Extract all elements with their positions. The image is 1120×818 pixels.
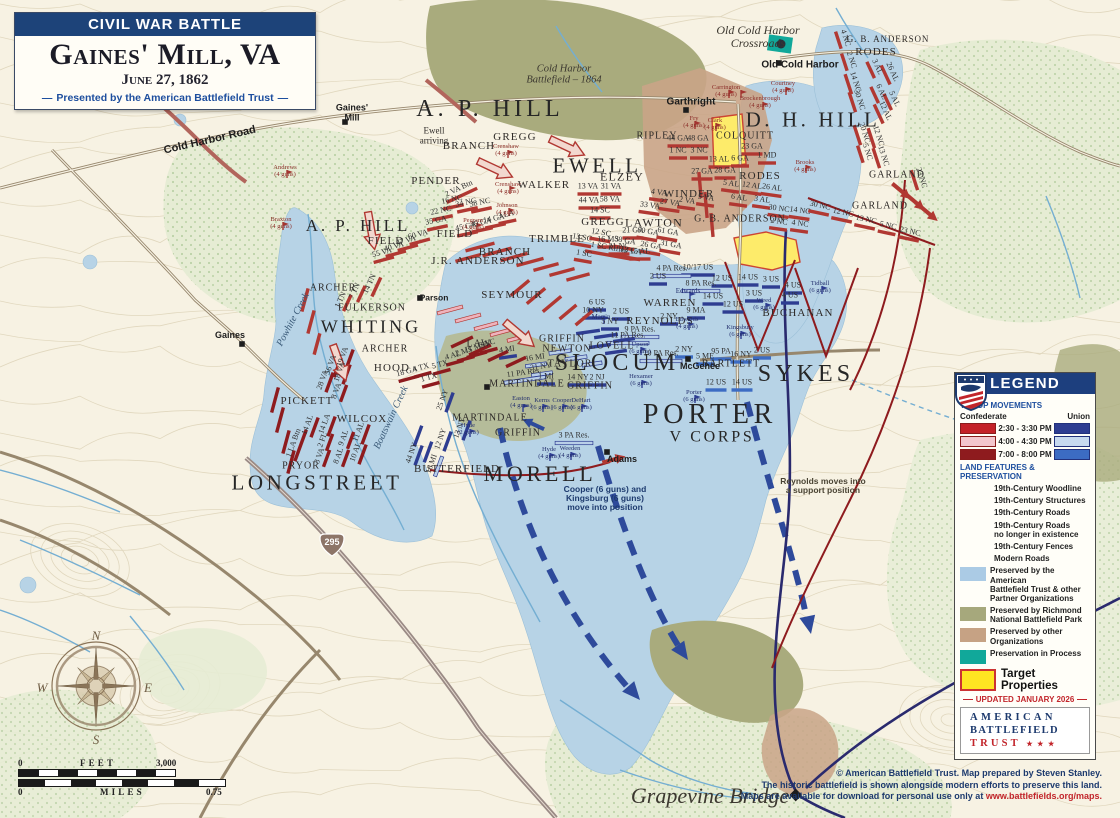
unit-bar (526, 287, 547, 305)
legend-troop-row: 2:30 - 3:30 PM (960, 423, 1090, 434)
unit-bar (601, 327, 619, 330)
unit-bar (356, 285, 367, 303)
unit-bar (762, 285, 780, 288)
battle-date: June 27, 1862 (15, 72, 315, 89)
page-title: Gaines' Mill, VA (15, 38, 315, 72)
unit-bar (856, 145, 865, 163)
confederate-arrow (916, 202, 941, 225)
unit-bar (649, 197, 667, 203)
confederate-attack-arrow (475, 154, 516, 185)
legend-item-road: 19th-Century Roads (960, 508, 1090, 517)
unit-bar (286, 450, 295, 474)
unit-bar (688, 144, 709, 147)
svg-text:295: 295 (324, 537, 339, 547)
unit-bar (723, 310, 744, 313)
unit-bar (706, 388, 727, 391)
unit-bar (324, 372, 334, 393)
unit-bar (549, 349, 571, 355)
unit-bar (609, 252, 630, 255)
unit-bar (687, 316, 705, 319)
artillery-marker (543, 404, 549, 412)
unit-bar (697, 172, 703, 198)
unit-bar (758, 161, 776, 164)
unit-bar (422, 381, 440, 389)
unit-bar (306, 310, 315, 334)
artillery-marker (741, 90, 747, 98)
artillery-marker (550, 453, 556, 461)
unit-bar (866, 128, 876, 149)
unit-bar (715, 176, 736, 179)
unit-bar (558, 304, 577, 321)
artillery-marker (822, 286, 828, 294)
unit-bar (790, 228, 808, 234)
credits-url-link[interactable]: www.battlefields.org/maps. (986, 791, 1102, 801)
unit-bar (753, 356, 771, 359)
unit-bar (341, 449, 350, 467)
unit-bar (413, 445, 423, 466)
unit-bar (516, 257, 544, 268)
structure-marker (683, 107, 689, 113)
unit-bar (880, 65, 892, 85)
unit-bar (769, 226, 787, 232)
union-retreat-arrows (500, 402, 807, 690)
unit-bar (342, 294, 353, 312)
unit-bar (852, 125, 862, 146)
unit-bar (455, 313, 481, 323)
structure-marker (342, 119, 348, 125)
legend-preservation-item: Preserved by other Organizations (960, 627, 1090, 645)
unit-bar (568, 383, 589, 386)
unit-bar (432, 214, 453, 222)
unit-bar (638, 210, 659, 216)
structure-marker (484, 384, 490, 390)
battle-type-banner: CIVIL WAR BATTLE (15, 13, 315, 36)
preservation-swatch (960, 567, 986, 581)
legend-item-woodline: 19th-Century Woodline (960, 484, 1090, 493)
unit-bar (738, 283, 759, 286)
unit-bar (682, 289, 720, 292)
unit-bar (474, 321, 498, 330)
unit-bar (594, 333, 618, 340)
artillery-marker (689, 322, 695, 330)
abt-logo: AMERICAN BATTLEFIELD TRUST ★ ★ ★ (960, 707, 1090, 754)
artillery-marker (510, 186, 516, 194)
legend-preservation-item: Preserved by Richmond National Battlefie… (960, 606, 1090, 624)
union-arrow (520, 415, 546, 434)
unit-bar (293, 429, 308, 462)
unit-bar (414, 371, 432, 379)
legend-panel: LEGEND TROOP MOVEMENTS Confederate Union… (954, 372, 1096, 760)
union-swatch (1054, 436, 1090, 447)
title-box: CIVIL WAR BATTLE Gaines' Mill, VA June 2… (14, 12, 316, 110)
unit-bar (653, 274, 691, 277)
unit-bar (409, 237, 430, 246)
artillery-marker (786, 87, 792, 95)
unit-bar (588, 383, 606, 386)
unit-bar (322, 449, 331, 467)
legend-item-structure: 19th-Century Structures (960, 496, 1090, 505)
unit-bar (656, 235, 677, 242)
unit-bar (576, 329, 600, 336)
unit-bar (731, 164, 749, 167)
artillery-marker (523, 404, 529, 412)
abt-shield-icon (955, 373, 987, 411)
unit-bars (270, 31, 919, 477)
unit-bar (788, 215, 809, 221)
map-credits: © American Battlefield Trust. Map prepar… (682, 768, 1102, 803)
artillery-marker (283, 222, 289, 230)
union-label: Union (1067, 412, 1090, 421)
unit-bar (281, 430, 290, 454)
legend-troop-row: 7:00 - 8:00 PM (960, 449, 1090, 460)
unit-bar (589, 343, 611, 349)
unit-bar (589, 236, 610, 243)
unit-bar (831, 216, 852, 224)
unit-bar (500, 252, 528, 263)
unit-bar (465, 241, 495, 252)
unit-bar (873, 104, 885, 124)
unit-bar (731, 360, 752, 363)
artillery-marker (806, 165, 812, 173)
unit-bar (427, 224, 448, 232)
unit-bar (649, 282, 667, 285)
compass-rose (52, 642, 140, 730)
unit-bar (709, 213, 714, 237)
unit-bar (313, 333, 322, 355)
unit-bar (533, 262, 559, 272)
unit-bar (549, 267, 575, 277)
unit-bar (555, 441, 593, 444)
target-properties-item: Target Properties (960, 668, 1090, 692)
miles-scale (18, 779, 226, 787)
unit-bar (690, 156, 708, 159)
unit-bar (579, 206, 600, 209)
unit-bar (752, 204, 770, 210)
unit-bar (847, 92, 857, 113)
confederate-swatch (960, 449, 996, 460)
unit-bar (565, 355, 587, 361)
unit-bar (525, 362, 546, 368)
unit-bar (677, 205, 695, 211)
unit-bar (742, 152, 763, 155)
unit-bar (574, 258, 592, 264)
unit-bar (601, 192, 622, 195)
artillery-marker (582, 404, 588, 412)
artillery-marker (563, 404, 569, 412)
artillery-marker (695, 395, 701, 403)
unit-bar (781, 301, 799, 304)
unit-bar (732, 388, 753, 391)
unit-bar (834, 31, 843, 49)
unit-bar (865, 61, 876, 79)
unit-bar (767, 213, 788, 219)
artillery-marker (695, 121, 701, 129)
unit-bar (808, 209, 829, 217)
unit-bar (740, 190, 761, 196)
unit-bar (623, 236, 644, 239)
unit-bar (869, 86, 880, 104)
unit-bar (882, 93, 893, 111)
unit-bar (360, 424, 370, 445)
unit-bar (658, 207, 679, 213)
artillery-marker (741, 331, 747, 339)
unit-bar (413, 425, 424, 447)
unit-bar (442, 431, 452, 452)
miles-max: 0.75 (206, 787, 222, 797)
unit-bar (598, 245, 619, 248)
unit-bar (300, 288, 309, 312)
unit-bar (373, 255, 394, 264)
unit-bar (590, 216, 611, 219)
unit-bar (275, 407, 285, 433)
unit-bar (582, 361, 602, 367)
unit-bar (692, 177, 713, 180)
legend-item-fence: 19th-Century Fences (960, 542, 1090, 551)
unit-bar (721, 188, 739, 194)
structure-marker (685, 356, 691, 362)
unit-bar (659, 248, 680, 255)
confederate-late-moves (430, 180, 935, 668)
artillery-marker (604, 316, 610, 324)
target-properties-swatch (960, 669, 996, 691)
feet-max: 3,000 (156, 758, 176, 768)
unit-bar (578, 192, 599, 195)
movement-layer (0, 0, 1120, 818)
unit-bar (696, 362, 714, 365)
unit-bar (871, 148, 881, 169)
legend-item-modern: 52Modern Roads (960, 554, 1090, 563)
artillery-marker (729, 90, 735, 98)
artillery-marker (690, 292, 696, 300)
artillery-marker (642, 380, 648, 388)
unit-bar (784, 291, 802, 294)
land-features-header: LAND FEATURES & PRESERVATION (960, 463, 1090, 481)
unit-bar (843, 74, 853, 95)
artillery-marker (509, 208, 515, 216)
unit-bar (566, 272, 590, 281)
unit-bar (668, 144, 689, 147)
unit-bar (433, 456, 443, 477)
unit-bar (570, 241, 591, 248)
unit-bar (605, 349, 627, 355)
artillery-marker (763, 102, 769, 110)
presented-by: Presented by the American Battlefield Tr… (15, 89, 315, 109)
unit-bar (482, 246, 512, 257)
unit-bar (712, 284, 733, 287)
unit-bar (640, 359, 682, 362)
union-swatch (1054, 449, 1090, 460)
unit-bar (339, 384, 348, 402)
artillery-marker (641, 347, 647, 355)
confederate-swatch (960, 423, 996, 434)
unit-bar (357, 444, 367, 465)
unit-bar (450, 335, 473, 348)
preservation-swatch (960, 607, 986, 621)
unit-bar (370, 277, 382, 297)
scale-bar: 0 FEET 3,000 0 MILES 0.75 (18, 758, 248, 798)
unit-bar (709, 165, 730, 168)
unit-bar (446, 187, 478, 204)
unit-bar (455, 253, 481, 263)
confederate-attack-arrow (547, 132, 588, 163)
unit-bar (270, 387, 280, 413)
confederate-attack-arrow (360, 211, 382, 251)
unit-bar (745, 299, 763, 302)
unit-bar (444, 392, 454, 413)
structure-marker (776, 60, 782, 66)
credit-line-1: © American Battlefield Trust. Map prepar… (682, 768, 1102, 780)
unit-bar (711, 357, 732, 360)
artillery-marker (571, 452, 577, 460)
miles-label: MILES (100, 787, 145, 797)
legend-updated: UPDATED JANUARY 2026 (960, 695, 1090, 704)
feet-scale (18, 769, 176, 777)
credit-line-3: Maps are available for download for pers… (682, 791, 1102, 803)
unit-bar (542, 295, 563, 313)
unit-bar (423, 441, 434, 463)
confederate-swatch (960, 436, 996, 447)
legend-preservation-item: Preserved by the American Battlefield Tr… (960, 566, 1090, 603)
structure-marker (239, 341, 245, 347)
unit-bar (498, 218, 516, 225)
credit-line-2: The historic battlefield is shown alongs… (682, 780, 1102, 792)
artillery-marker (766, 303, 772, 311)
confederate-label: Confederate (960, 412, 1007, 421)
unit-bar (433, 368, 451, 376)
unit-bar (840, 53, 849, 71)
unit-bar (309, 417, 319, 438)
artillery-marker (470, 429, 476, 437)
unit-bar (660, 322, 678, 325)
unit-bar (639, 249, 660, 256)
union-swatch (1054, 423, 1090, 434)
legend-troop-row: 4:00 - 4:30 PM (960, 436, 1090, 447)
unit-bar (437, 305, 463, 315)
unit-bar (729, 202, 747, 208)
structure-marker (417, 295, 423, 301)
preservation-swatch (960, 628, 986, 642)
preservation-swatch (960, 650, 986, 664)
unit-bar (854, 223, 875, 231)
artillery-marker (716, 123, 722, 131)
unit-bar (909, 170, 919, 191)
unit-bar (669, 156, 687, 159)
legend-item-road-gone: 19th-Century Roads no longer in existenc… (960, 521, 1090, 539)
unit-bar (537, 382, 555, 385)
battle-map-canvas[interactable]: A. P. HILLA. P. HILLEWELLD. H. HILLWHITI… (0, 0, 1120, 818)
artillery-marker (508, 150, 514, 158)
confederate-attack-arrow (500, 316, 539, 353)
unit-bar (612, 317, 630, 320)
unit-bar (630, 257, 651, 260)
artillery-marker (287, 170, 293, 178)
feet-label: FEET (80, 758, 116, 768)
unit-bar (346, 431, 355, 449)
unit-bar (510, 279, 531, 297)
unit-bar (760, 192, 781, 198)
legend-preservation-item: Preservation in Process (960, 649, 1090, 664)
unit-bar (600, 205, 621, 208)
structure-marker (604, 449, 610, 455)
logo-stars: ★ ★ ★ (1026, 740, 1055, 748)
unit-bar (703, 302, 724, 305)
